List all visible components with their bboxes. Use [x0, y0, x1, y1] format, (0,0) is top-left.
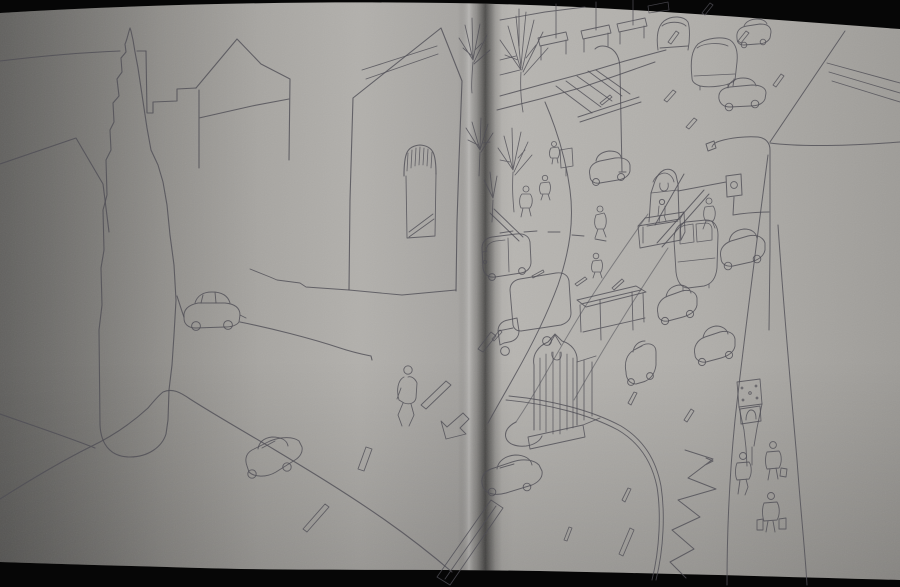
sketchbook-svg — [0, 0, 900, 587]
paper-grain — [0, 0, 900, 587]
sketchbook-photo — [0, 0, 900, 587]
